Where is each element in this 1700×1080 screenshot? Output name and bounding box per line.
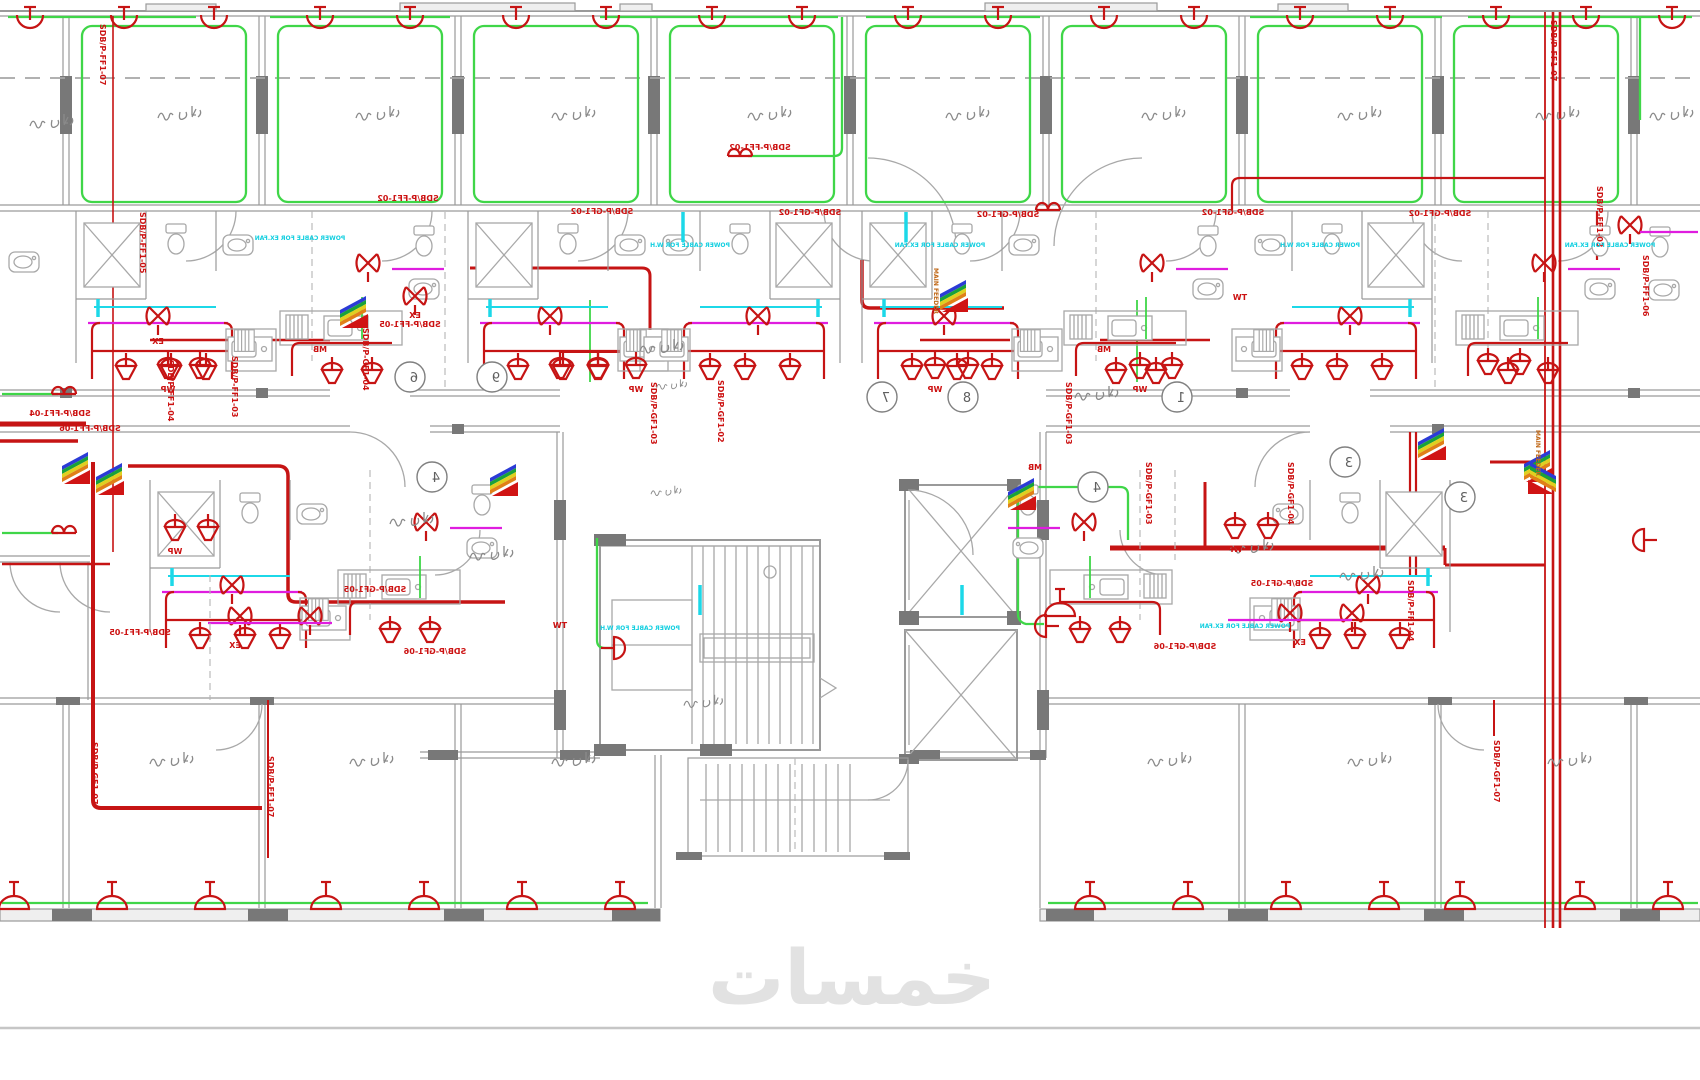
circuit-label: SDB/P-GF1-03 [1064, 382, 1073, 445]
device-tag: MB [1028, 463, 1042, 472]
circuit-label: SDB/P-FF1-06 [1641, 255, 1650, 317]
grid-bubble-label: 8 [963, 391, 971, 406]
corridor-walls [0, 388, 1700, 434]
cable-note: POWER CABLE FOR EX.FAN [255, 235, 346, 242]
circuit-label: SDB/P-GF1-02 [779, 208, 842, 217]
cable-note: POWER CABLE FOR W.H [1280, 242, 1360, 249]
device-tag: MB [1097, 345, 1111, 354]
riser-note: MAIN FEEDER [1534, 430, 1541, 476]
device-tag: TW [1233, 293, 1247, 302]
circuit-label: SDB/P-FF1-06 [59, 424, 121, 433]
circuit-label: SDB/P-GF1-06 [1153, 642, 1216, 651]
circuit-label: SDB/P-FF1-07 [98, 24, 107, 85]
circuit-label: SDB/P-FF1-07 [1549, 20, 1558, 81]
circuit-label: SDB/P-FF1-02 [729, 143, 790, 152]
device-tag: MB [313, 345, 327, 354]
stair-core [594, 534, 836, 756]
device-tag: WP [629, 385, 644, 394]
circuit-label: SDB/P-GF1-07 [1492, 740, 1501, 803]
circuit-label: SDB/P-GF1-03 [649, 382, 658, 445]
circuit-label: SDB/P-GF1-04 [1286, 462, 1295, 525]
cable-note: POWER CABLE FOR EX.FAN [1565, 242, 1656, 249]
riser-note: MAIN FEEDER [932, 268, 939, 314]
circuit-label: SDB/P-FF1-07 [266, 756, 275, 817]
circuit-label: SDB/P-FF1-04 [1406, 580, 1415, 642]
circuit-label: SDB/P-GF1-02 [1202, 208, 1265, 217]
grid-bubble-label: 6 [410, 371, 418, 386]
circuit-label: SDB/P-GF1-05 [1250, 579, 1313, 588]
circuit-label: SDB/P-FF1-05 [379, 320, 441, 329]
elevator-dim-note [657, 379, 687, 389]
grid-bubble-label: 1 [1177, 391, 1185, 406]
grid-bubble-label: 4 [432, 471, 440, 486]
watermark: خمسات [708, 933, 996, 1022]
grid-bubble-label: 7 [882, 391, 890, 406]
circuit-label: SDB/P-GF1-04 [361, 328, 370, 391]
circuit-label: SDB/P-GF1-06 [403, 647, 466, 656]
device-tag: EX [228, 641, 240, 650]
circuit-label: SDB/P-GF1-07 [90, 742, 99, 805]
grid-bubble-label: 3 [1460, 491, 1468, 506]
circuit-label: SDB/P-FF1-05 [109, 628, 171, 637]
circuit-label: SDB/P-GF1-02 [716, 380, 725, 443]
circuit-label: SDB/P-GF1-02 [571, 207, 634, 216]
device-tag: TW [553, 621, 567, 630]
circuit-label: SDB/P-GF1-02 [1409, 209, 1472, 218]
grid-bubble-label: 3 [1345, 456, 1353, 471]
cable-note: POWER CABLE FOR W.H [600, 625, 680, 632]
cable-note: POWER CABLE FOR EX.FAN [895, 242, 986, 249]
exterior-stair [676, 695, 910, 860]
device-tag: EX [1293, 638, 1305, 647]
cable-note: POWER CABLE FOR EX.FAN [1200, 623, 1291, 630]
device-tag: EX [408, 311, 420, 320]
floor-plan-svg: 6 9 7 8 1 4 4 3 3 SDB/P-FF1-07 SDB/P-FF1… [0, 0, 1700, 1080]
circuit-label: SDB/P-FF1-03 [230, 356, 239, 417]
floor-plan-canvas: 6 9 7 8 1 4 4 3 3 SDB/P-FF1-07 SDB/P-FF1… [0, 0, 1700, 1080]
device-tag: WP [1228, 545, 1243, 554]
grid-bubble-label: 4 [1093, 481, 1101, 496]
circuit-label: SDB/P-FF1-02 [377, 194, 438, 203]
circuit-label: SDB/P-FF1-04 [29, 409, 91, 418]
bathroom-clusters [9, 211, 1679, 648]
grid-bubble-label: 9 [492, 371, 500, 386]
device-tag: WP [161, 385, 176, 394]
circuit-label: SDB/P-GF1-05 [343, 585, 406, 594]
circuit-label: SDB/P-FF1-05 [138, 212, 147, 274]
circuit-label: SDB/P-GF1-03 [1144, 462, 1153, 525]
device-tag: WP [168, 547, 183, 556]
device-tag: EX [151, 337, 163, 346]
circuit-label: SDB/P-FF1-03 [1595, 186, 1604, 247]
cable-note: POWER CABLE FOR W.H [650, 242, 730, 249]
device-tag: WP [928, 385, 943, 394]
circuit-label: SDB/P-GF1-02 [977, 210, 1040, 219]
top-room-partitions [0, 16, 1700, 211]
device-tag: WP [1133, 385, 1148, 394]
device-tags: WP WP WP WP WP WP EX EX EX EX MB MB MB T… [151, 293, 1305, 650]
